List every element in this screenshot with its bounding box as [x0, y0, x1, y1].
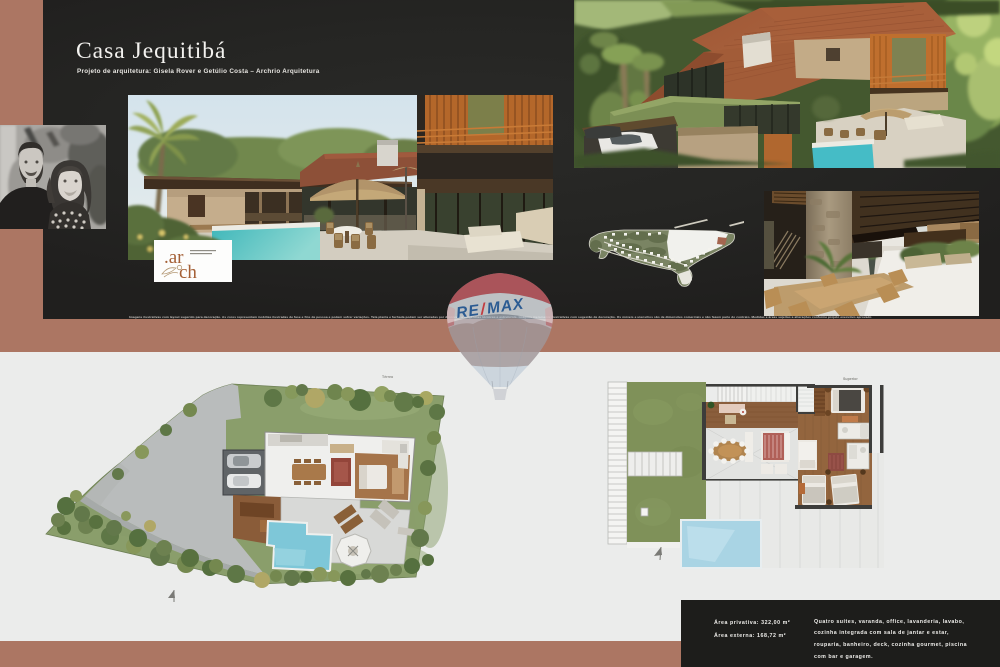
svg-text:ch: ch	[179, 262, 197, 282]
svg-text:Superior: Superior	[843, 377, 858, 381]
svg-text:Térreo: Térreo	[382, 375, 394, 379]
svg-text:RE: RE	[455, 302, 481, 322]
